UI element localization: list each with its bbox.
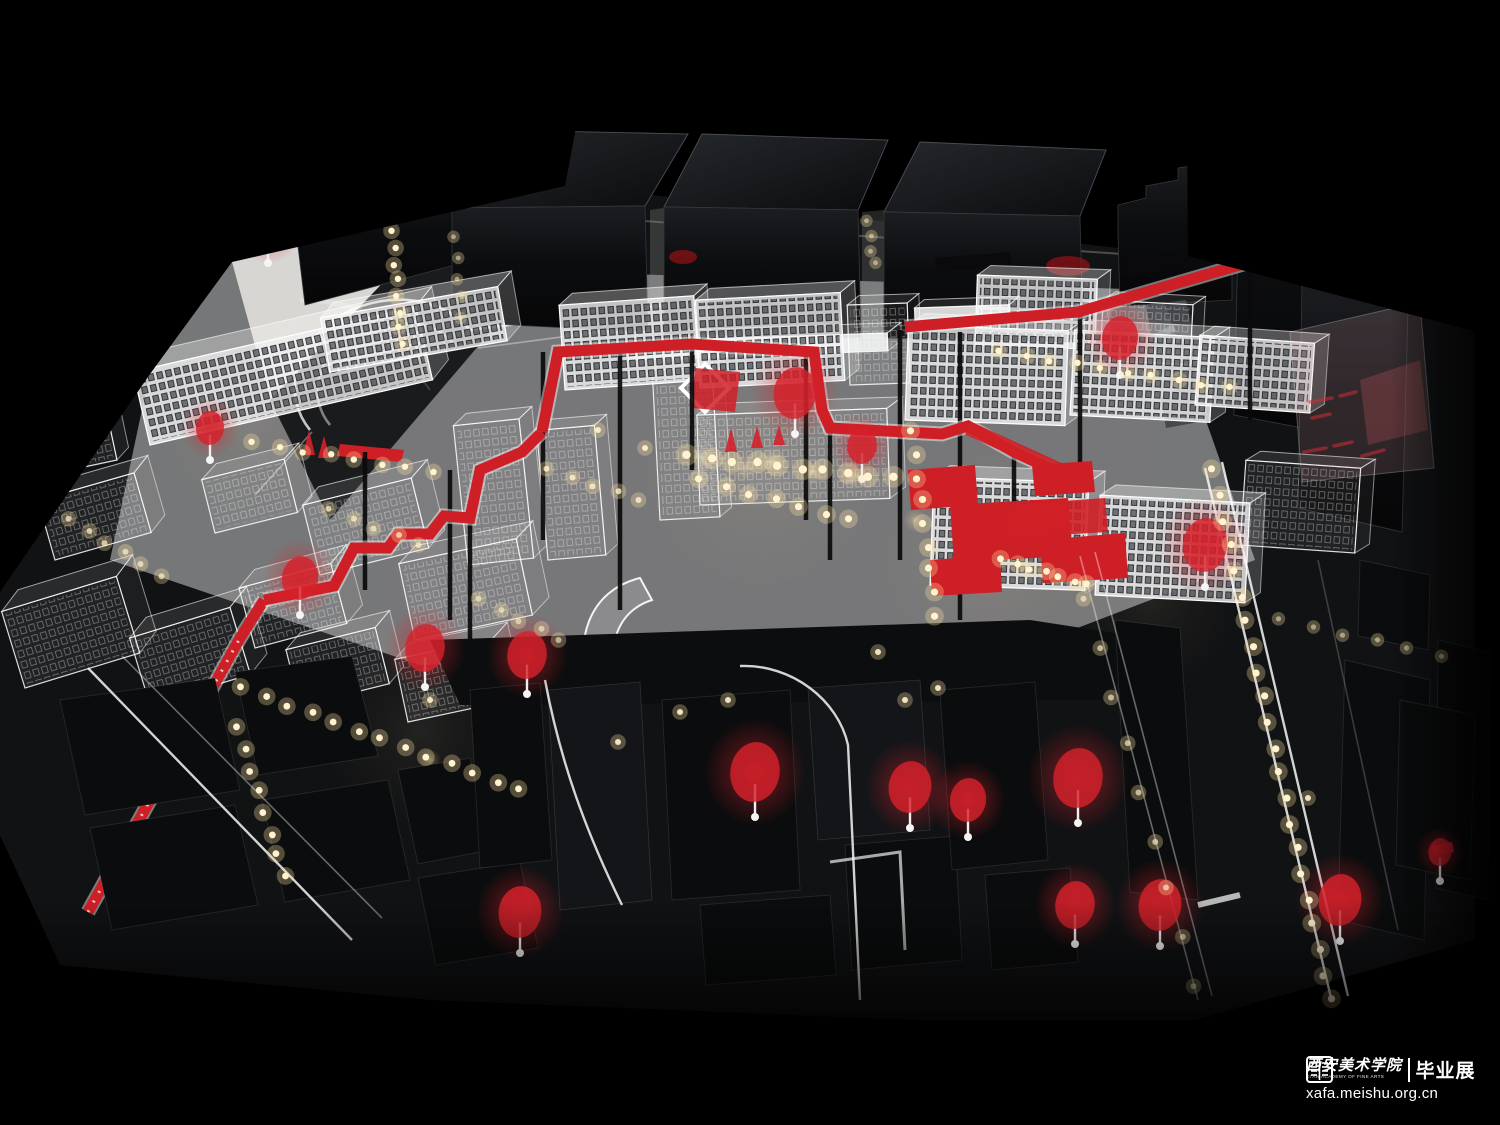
red-tree: [384, 605, 466, 691]
acrylic-building: [536, 414, 619, 560]
exhibition-watermark: 西安美术学院 XI'AN ACADEMY OF FINE ARTS 毕业展 xa…: [1306, 1056, 1476, 1102]
photo-architectural-model: 西安美术学院 XI'AN ACADEMY OF FINE ARTS 毕业展 xa…: [0, 0, 1500, 1125]
bottom-black-band: [0, 1020, 1500, 1125]
red-tree: [704, 718, 806, 826]
academy-name-en: XI'AN ACADEMY OF FINE ARTS: [1306, 1075, 1402, 1080]
red-tree: [1027, 724, 1129, 832]
red-tree: [751, 346, 839, 440]
watermark-divider: [1408, 1058, 1410, 1082]
model-scene: [0, 0, 1500, 1125]
exhibition-label: 毕业展: [1416, 1056, 1476, 1083]
red-tree: [486, 612, 568, 698]
red-reflection: [669, 250, 697, 264]
watermark-url: xafa.meishu.org.cn: [1306, 1085, 1476, 1102]
